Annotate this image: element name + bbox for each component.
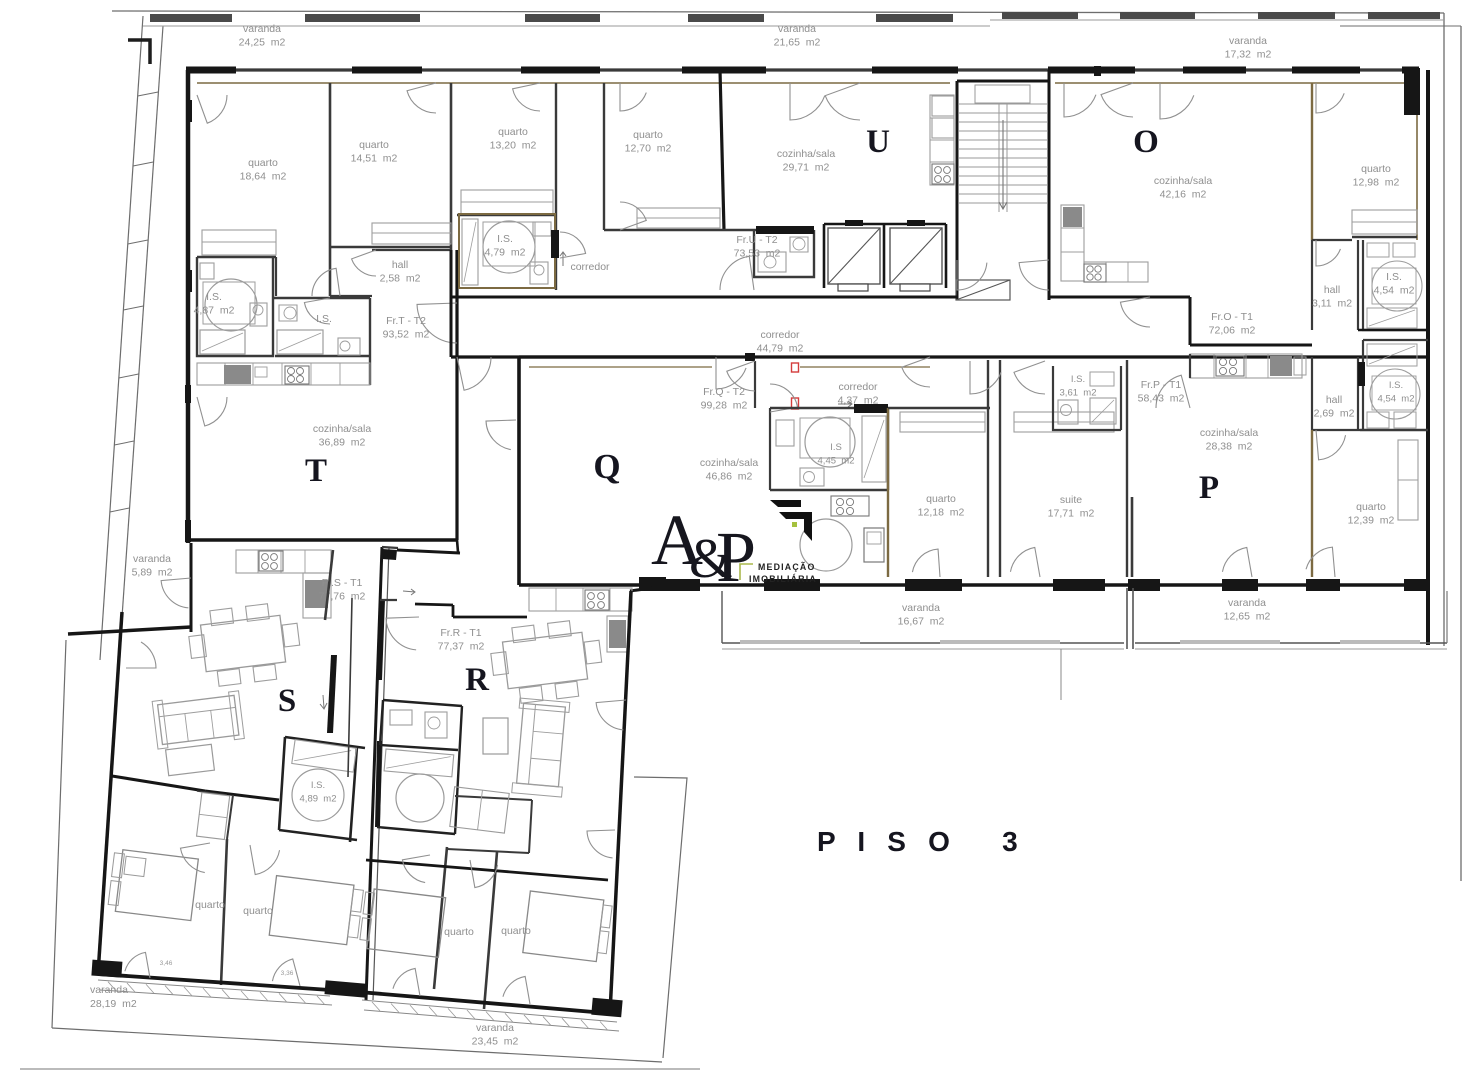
svg-text:varanda: varanda [1228,597,1266,609]
svg-text:23,45 m2: 23,45 m2 [472,1036,519,1048]
svg-text:varanda: varanda [902,602,940,614]
svg-text:suite: suite [1060,494,1082,506]
svg-text:58,43 m2: 58,43 m2 [1138,393,1185,405]
svg-text:cozinha/sala: cozinha/sala [1154,175,1213,187]
svg-text:MEDIAÇÃO: MEDIAÇÃO [758,562,816,572]
svg-text:36,89 m2: 36,89 m2 [319,437,366,449]
svg-text:24,25 m2: 24,25 m2 [239,37,286,49]
svg-text:17,71 m2: 17,71 m2 [1048,508,1095,520]
svg-text:14,51 m2: 14,51 m2 [351,153,398,165]
svg-text:12,18 m2: 12,18 m2 [918,507,965,519]
svg-text:4,54 m2: 4,54 m2 [1374,285,1415,297]
svg-text:12,98 m2: 12,98 m2 [1353,177,1400,189]
svg-text:corredor: corredor [570,261,610,273]
svg-text:Fr.R - T1: Fr.R - T1 [440,627,481,639]
svg-text:77,76 m2: 77,76 m2 [319,591,366,603]
svg-text:4,89 m2: 4,89 m2 [300,794,337,805]
svg-text:3,61 m2: 3,61 m2 [1060,388,1097,399]
svg-text:quarto: quarto [359,139,389,151]
svg-text:hall: hall [392,259,408,271]
svg-text:cozinha/sala: cozinha/sala [777,148,836,160]
svg-text:12,39 m2: 12,39 m2 [1348,515,1395,527]
svg-text:I.S.: I.S. [311,780,325,791]
svg-text:quarto: quarto [501,925,531,937]
svg-text:77,37 m2: 77,37 m2 [438,641,485,653]
svg-text:93,52 m2: 93,52 m2 [383,329,430,341]
svg-text:P: P [716,517,756,597]
svg-text:varanda: varanda [243,23,281,35]
svg-text:quarto: quarto [1356,501,1386,513]
svg-text:quarto: quarto [498,126,528,138]
svg-text:2,69 m2: 2,69 m2 [1314,408,1355,420]
svg-text:3,11 m2: 3,11 m2 [1312,298,1352,310]
svg-text:I.S.: I.S. [316,313,332,325]
svg-text:4,87 m2: 4,87 m2 [194,305,235,317]
svg-text:R: R [465,662,490,698]
svg-text:quarto: quarto [633,129,663,141]
svg-text:T: T [305,453,327,489]
svg-text:quarto: quarto [195,899,225,911]
svg-text:12,65 m2: 12,65 m2 [1224,611,1271,623]
svg-text:46,86 m2: 46,86 m2 [706,471,753,483]
svg-text:I.S.: I.S. [1386,271,1402,283]
svg-text:cozinha/sala: cozinha/sala [700,457,759,469]
svg-text:hall: hall [1324,284,1340,296]
svg-text:73,53 m2: 73,53 m2 [734,248,781,260]
svg-text:3,36: 3,36 [281,970,294,977]
svg-text:cozinha/sala: cozinha/sala [313,423,372,435]
svg-text:S: S [278,683,296,719]
svg-text:IMOBILIÁRIA: IMOBILIÁRIA [749,574,817,584]
svg-text:cozinha/sala: cozinha/sala [1200,427,1259,439]
svg-text:varanda: varanda [133,553,171,565]
svg-text:O: O [1133,124,1159,160]
svg-text:quarto: quarto [1361,163,1391,175]
svg-text:I.S.: I.S. [206,291,222,303]
svg-text:varanda: varanda [90,984,128,996]
svg-text:99,28 m2: 99,28 m2 [701,400,748,412]
svg-text:28,19 m2: 28,19 m2 [90,998,137,1010]
svg-text:P I S O 3: P I S O 3 [817,826,1025,857]
svg-text:21,65 m2: 21,65 m2 [774,37,821,49]
svg-text:I.S.: I.S. [497,233,513,245]
svg-text:I.S.: I.S. [1389,380,1403,391]
svg-text:quarto: quarto [444,926,474,938]
svg-text:42,16 m2: 42,16 m2 [1160,189,1207,201]
svg-text:72,06 m2: 72,06 m2 [1209,325,1256,337]
svg-text:quarto: quarto [248,157,278,169]
svg-text:17,32 m2: 17,32 m2 [1225,49,1272,61]
svg-text:hall: hall [1326,394,1342,406]
svg-text:16,67 m2: 16,67 m2 [898,616,945,628]
svg-text:corredor: corredor [838,381,878,393]
svg-text:I.S.: I.S. [1071,374,1085,385]
svg-text:varanda: varanda [1229,35,1267,47]
svg-text:Fr.T - T2: Fr.T - T2 [386,315,426,327]
svg-text:12,70 m2: 12,70 m2 [625,143,672,155]
svg-text:varanda: varanda [476,1022,514,1034]
svg-text:varanda: varanda [778,23,816,35]
svg-text:quarto: quarto [926,493,956,505]
svg-text:4,54 m2: 4,54 m2 [1378,394,1415,405]
svg-text:28,38 m2: 28,38 m2 [1206,441,1253,453]
svg-text:Q: Q [593,447,620,486]
svg-text:4,79 m2: 4,79 m2 [485,247,526,259]
svg-text:29,71 m2: 29,71 m2 [783,162,830,174]
svg-text:Fr.Q - T2: Fr.Q - T2 [703,386,745,398]
svg-text:Fr.O - T1: Fr.O - T1 [1211,311,1253,323]
svg-text:5,89 m2: 5,89 m2 [132,567,173,579]
svg-text:U: U [866,124,890,160]
svg-text:4,45 m2: 4,45 m2 [818,456,855,467]
svg-text:corredor: corredor [760,329,800,341]
svg-text:18,64 m2: 18,64 m2 [240,171,287,183]
svg-text:13,20 m2: 13,20 m2 [490,140,537,152]
svg-text:44,79 m2: 44,79 m2 [757,343,804,355]
svg-text:I.S: I.S [830,442,842,453]
svg-text:P: P [1199,470,1219,506]
svg-text:Fr.U - T2: Fr.U - T2 [736,234,777,246]
svg-text:2,58 m2: 2,58 m2 [380,273,421,285]
svg-text:quarto: quarto [243,905,273,917]
svg-text:3,46: 3,46 [160,960,173,967]
